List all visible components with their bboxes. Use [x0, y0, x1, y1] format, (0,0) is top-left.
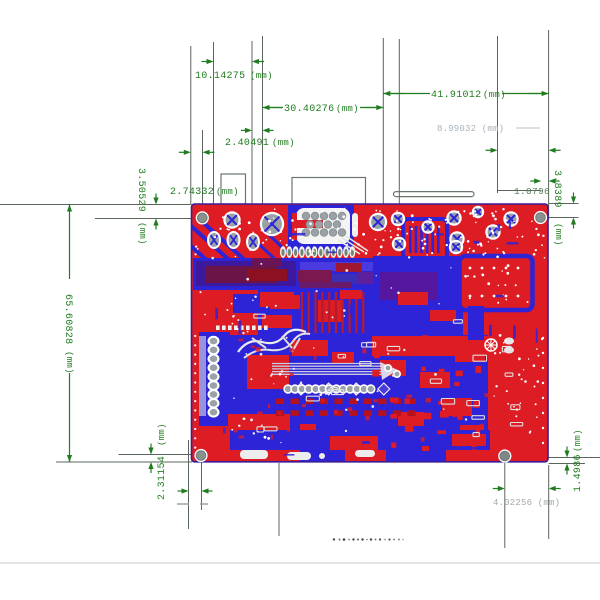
svg-text:(mm): (mm): [250, 71, 273, 81]
svg-text:1.0796: 1.0796: [514, 186, 550, 197]
svg-text:30.40276: 30.40276: [284, 104, 334, 115]
svg-text:8.99032 (mm): 8.99032 (mm): [437, 124, 504, 134]
svg-text:10.14275: 10.14275: [195, 71, 245, 82]
svg-text:(mm): (mm): [483, 90, 506, 100]
svg-text:(mm): (mm): [553, 223, 563, 246]
svg-text:(mm): (mm): [216, 187, 239, 197]
svg-text:(mm): (mm): [137, 222, 147, 245]
svg-text:(mm): (mm): [336, 104, 359, 114]
svg-text:65.60828: 65.60828: [62, 294, 73, 344]
svg-text:(mm): (mm): [272, 138, 295, 148]
svg-text:2.31154: 2.31154: [157, 456, 168, 500]
svg-text:3.50529: 3.50529: [135, 168, 146, 212]
svg-text:4.02256 (mm): 4.02256 (mm): [493, 498, 560, 508]
svg-text:1.4986: 1.4986: [573, 454, 584, 492]
svg-text:(mm): (mm): [573, 429, 583, 452]
svg-text:41.91012: 41.91012: [431, 90, 481, 101]
svg-text:3.8389: 3.8389: [551, 170, 562, 208]
svg-text:2.40491: 2.40491: [225, 138, 269, 149]
svg-text:2.74332: 2.74332: [170, 187, 214, 198]
svg-text:(mm): (mm): [64, 351, 74, 374]
svg-text:(mm): (mm): [157, 423, 167, 446]
